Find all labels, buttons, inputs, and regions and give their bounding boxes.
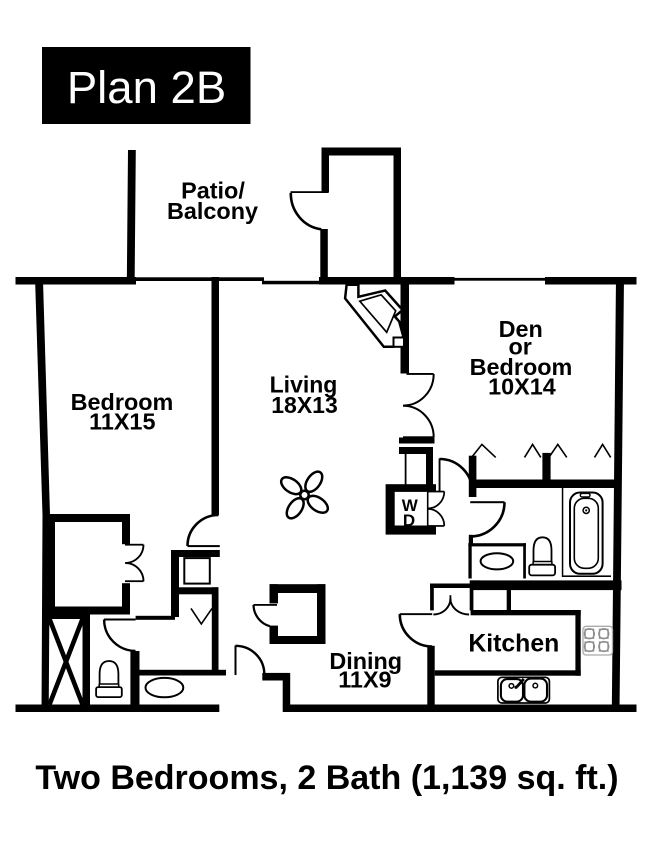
svg-text:D: D (403, 511, 415, 530)
svg-text:Kitchen: Kitchen (468, 631, 559, 658)
svg-text:11X9: 11X9 (338, 666, 391, 692)
svg-text:Balcony: Balcony (167, 198, 258, 224)
svg-text:Plan 2B: Plan 2B (67, 62, 226, 113)
svg-text:18X13: 18X13 (271, 392, 338, 418)
svg-text:Two Bedrooms, 2 Bath (1,139 sq: Two Bedrooms, 2 Bath (1,139 sq. ft.) (35, 759, 618, 797)
svg-text:10X14: 10X14 (488, 374, 556, 400)
svg-text:11X15: 11X15 (89, 409, 155, 435)
